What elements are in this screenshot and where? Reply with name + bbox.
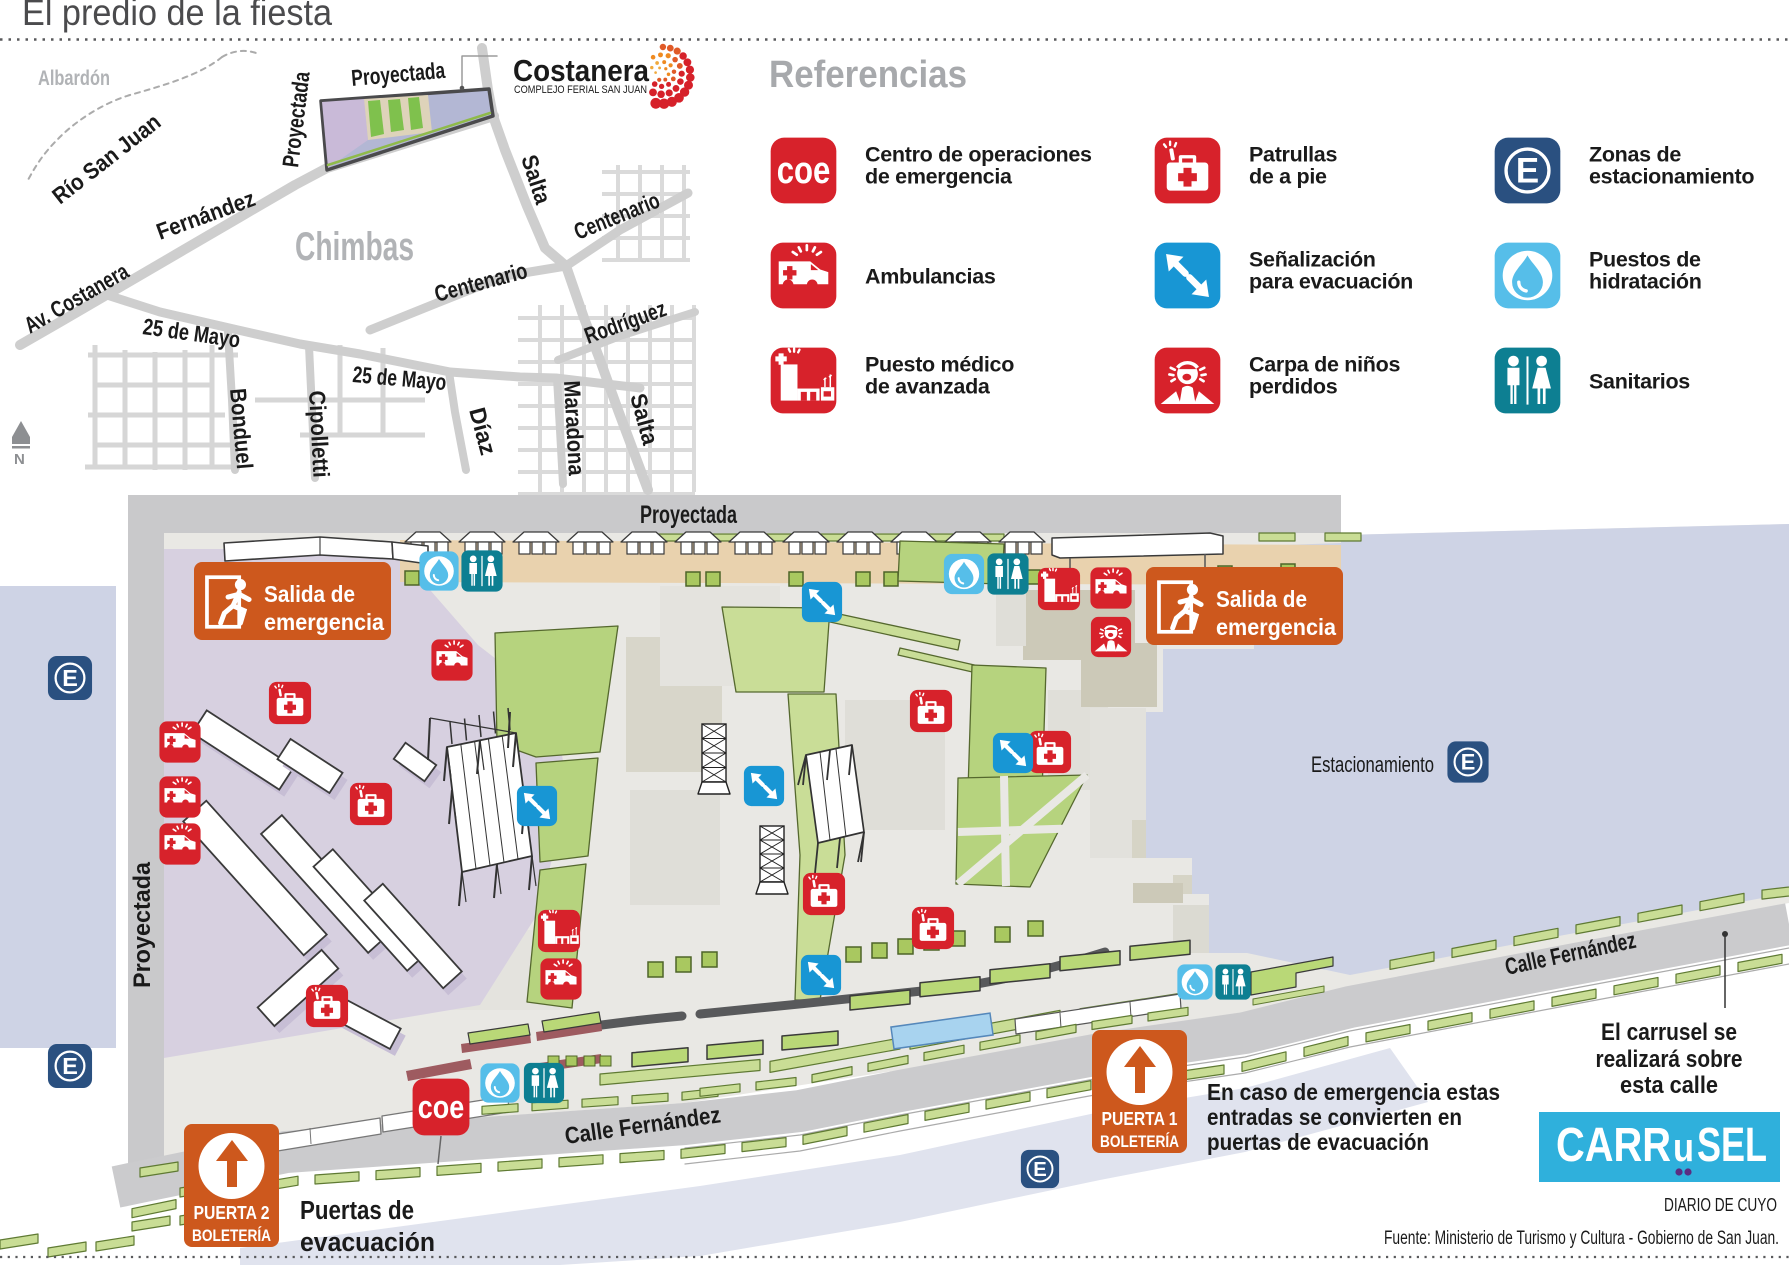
svg-text:Puestos de: Puestos de xyxy=(1589,248,1701,272)
svg-text:realizará sobre: realizará sobre xyxy=(1596,1046,1743,1073)
svg-text:Fuente: Ministerio de Turismo: Fuente: Ministerio de Turismo y Cultura … xyxy=(1384,1227,1779,1249)
svg-text:SEL: SEL xyxy=(1697,1119,1767,1172)
svg-text:PUERTA 2: PUERTA 2 xyxy=(194,1203,270,1223)
svg-text:Sanitarios: Sanitarios xyxy=(1589,370,1690,394)
svg-text:entradas se convierten en: entradas se convierten en xyxy=(1207,1104,1462,1130)
svg-text:DIARIO DE CUYO: DIARIO DE CUYO xyxy=(1664,1195,1777,1215)
svg-text:perdidos: perdidos xyxy=(1249,375,1338,399)
svg-text:Maradona: Maradona xyxy=(559,380,590,476)
svg-text:Chimbas: Chimbas xyxy=(295,225,414,269)
svg-text:Bonduel: Bonduel xyxy=(225,387,258,470)
svg-text:Díaz: Díaz xyxy=(464,405,502,458)
svg-text:Estacionamiento: Estacionamiento xyxy=(1311,752,1434,777)
svg-text:de emergencia: de emergencia xyxy=(865,165,1013,189)
svg-text:Puesto médico: Puesto médico xyxy=(865,353,1014,377)
svg-text:Proyectada: Proyectada xyxy=(277,70,315,169)
svg-text:Zonas de: Zonas de xyxy=(1589,143,1681,167)
svg-text:estacionamiento: estacionamiento xyxy=(1589,165,1754,189)
svg-text:N: N xyxy=(14,451,25,468)
svg-text:de a pie: de a pie xyxy=(1249,165,1327,189)
svg-text:Salida de: Salida de xyxy=(264,581,355,607)
svg-text:Albardón: Albardón xyxy=(38,67,110,90)
svg-text:emergencia: emergencia xyxy=(264,609,385,635)
svg-text:evacuación: evacuación xyxy=(300,1229,435,1257)
svg-text:Proyectada: Proyectada xyxy=(350,57,446,91)
svg-text:CARR: CARR xyxy=(1556,1119,1671,1172)
svg-text:Patrullas: Patrullas xyxy=(1249,143,1337,167)
svg-text:Costanera: Costanera xyxy=(513,53,650,88)
svg-text:El carrusel se: El carrusel se xyxy=(1601,1019,1737,1046)
svg-text:para evacuación: para evacuación xyxy=(1249,270,1413,294)
svg-text:emergencia: emergencia xyxy=(1216,614,1337,640)
svg-text:Referencias: Referencias xyxy=(769,54,967,96)
svg-text:COMPLEJO FERIAL SAN JUAN: COMPLEJO FERIAL SAN JUAN xyxy=(514,84,647,96)
svg-text:PUERTA 1: PUERTA 1 xyxy=(1102,1109,1178,1129)
svg-text:BOLETERÍA: BOLETERÍA xyxy=(1100,1132,1179,1151)
svg-text:puertas de evacuación: puertas de evacuación xyxy=(1207,1129,1429,1155)
svg-text:25 de Mayo: 25 de Mayo xyxy=(141,313,242,352)
svg-text:u: u xyxy=(1673,1126,1694,1170)
svg-text:Señalización: Señalización xyxy=(1249,248,1376,272)
svg-text:El predio de la fiesta: El predio de la fiesta xyxy=(22,0,332,33)
svg-text:Carpa de niños: Carpa de niños xyxy=(1249,353,1400,377)
svg-text:Salida de: Salida de xyxy=(1216,586,1307,612)
svg-text:de avanzada: de avanzada xyxy=(865,375,991,399)
svg-text:Río San Juan: Río San Juan xyxy=(47,108,165,209)
svg-text:Ambulancias: Ambulancias xyxy=(865,265,996,289)
svg-text:BOLETERÍA: BOLETERÍA xyxy=(192,1226,271,1245)
svg-text:Centro de operaciones: Centro de operaciones xyxy=(865,143,1092,167)
svg-text:En caso de emergencia estas: En caso de emergencia estas xyxy=(1207,1079,1500,1105)
svg-text:Proyectada: Proyectada xyxy=(640,501,738,529)
svg-text:Proyectada: Proyectada xyxy=(129,861,156,988)
svg-text:esta calle: esta calle xyxy=(1620,1072,1718,1099)
svg-text:Centenario: Centenario xyxy=(432,257,530,307)
svg-text:hidratación: hidratación xyxy=(1589,270,1702,294)
svg-text:Cipolletti: Cipolletti xyxy=(304,390,335,478)
svg-text:Puertas de: Puertas de xyxy=(300,1197,414,1225)
